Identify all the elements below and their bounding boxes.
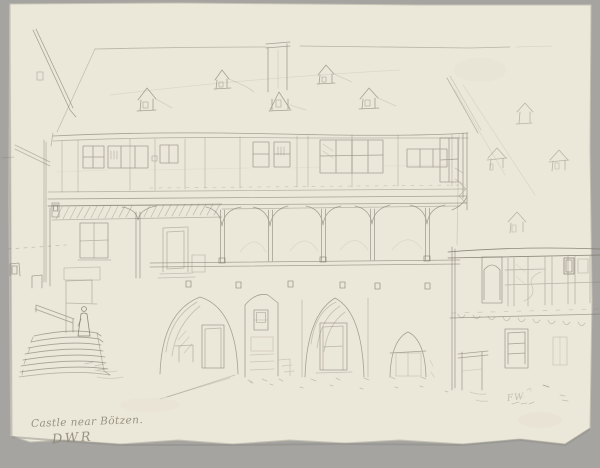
paper-sheet: [9, 3, 592, 445]
drawing-canvas: [0, 0, 600, 468]
scanned-pencil-drawing: Castle near Bötzen. DWR FW: [0, 0, 600, 468]
